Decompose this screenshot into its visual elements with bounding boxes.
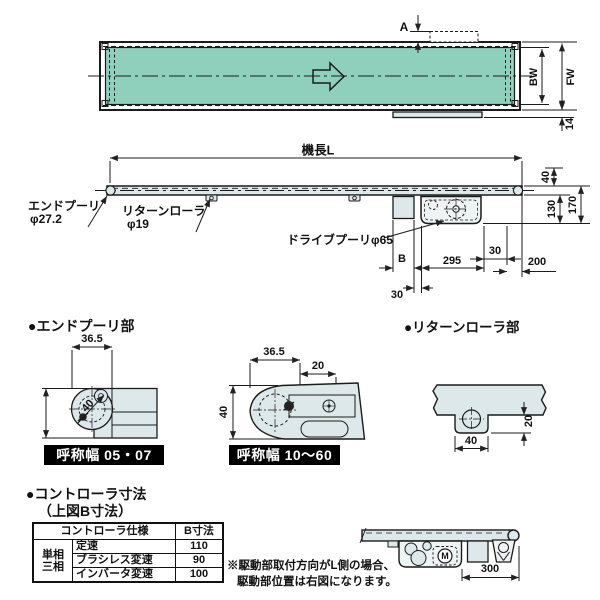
dim-30-right-label: 30 (489, 245, 501, 257)
dim-b-label: B (398, 253, 406, 265)
end-pulley-fig-small (42, 347, 157, 438)
table-row-value: 90 (176, 554, 224, 568)
table-row-name: インバータ変速 (73, 568, 176, 583)
end-pulley-left (106, 186, 115, 195)
table-header-spec: コントローラ仕様 (33, 523, 176, 540)
dim-bw-label: BW (528, 68, 540, 86)
dim-20-large: 20 (312, 360, 324, 372)
table-phase-cell: 単相三相 (33, 540, 73, 583)
table-row-name: 定速 (73, 540, 176, 554)
motor-m-label: M (441, 551, 449, 561)
return-roller-diameter: φ19 (127, 217, 149, 231)
technical-drawing-page: A BW FW 14 機長L 40 130 170 エンドプーリ φ27.2 リ… (0, 0, 600, 600)
dim-300-label: 300 (481, 563, 499, 575)
badge-width-10-60: 呼称幅 10～60 (229, 445, 340, 465)
drive-pulley-label: ドライブプーリφ65 (287, 231, 393, 248)
end-bracket (493, 540, 516, 562)
side-view-figure (88, 158, 590, 293)
controller-box (393, 197, 414, 219)
dim-40-roller: 40 (465, 435, 477, 447)
end-pulley-right (513, 186, 522, 195)
drive-unit-housing (421, 197, 481, 224)
controller-box (468, 541, 489, 562)
controller-section-subtitle: （上図B寸法） (38, 501, 132, 521)
dim-40-large: 40 (218, 406, 230, 418)
note-line-1: ※駆動部取付方向がL側の場合、 (227, 557, 395, 573)
dim-295-label: 295 (443, 255, 461, 267)
dim-14-label: 14 (564, 118, 576, 130)
drive-position-dashed-outline (430, 32, 478, 43)
dim-20-roller: 20 (523, 415, 535, 427)
top-view-figure (88, 15, 577, 131)
table-row-value: 100 (176, 568, 224, 583)
table-row-name: ブラシレス変速 (73, 554, 176, 568)
dim-36-5-small: 36.5 (81, 333, 102, 345)
return-roller-section-title: ●リターンローラ部 (404, 316, 519, 336)
phase-single: 単相 (37, 549, 69, 561)
controller-size-table: コントローラ仕様 B寸法 単相三相 定速 110 ブラシレス変速 90 インバー… (32, 522, 224, 583)
end-pulley-diameter: φ27.2 (30, 212, 62, 226)
badge-width-05-07: 呼称幅 05・07 (44, 445, 164, 465)
dim-170-label: 170 (567, 196, 579, 214)
dim-30-left-label: 30 (391, 289, 403, 301)
end-pulley-fig-large (229, 360, 365, 439)
note-line-2: 駆動部位置は右図になります。 (237, 573, 397, 589)
dim-fw-label: FW (565, 68, 577, 85)
table-header-b: B寸法 (176, 523, 224, 540)
dim-machine-length-label: 機長L (302, 140, 335, 159)
dim-130-label: 130 (546, 200, 558, 218)
dim-36-5-large: 36.5 (263, 346, 284, 358)
dim-200-label: 200 (528, 256, 546, 268)
table-row-value: 110 (176, 540, 224, 554)
dim-a-label: A (400, 20, 409, 34)
dim-40-label: 40 (540, 171, 552, 183)
phase-three: 三相 (37, 561, 69, 573)
